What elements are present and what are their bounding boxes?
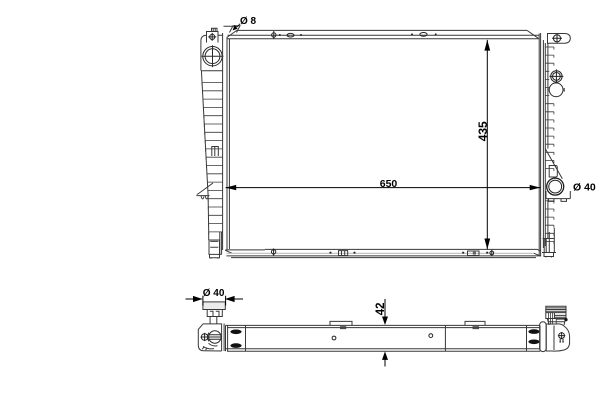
svg-text:435: 435 — [476, 121, 490, 141]
svg-text:650: 650 — [380, 178, 398, 190]
svg-text:Ø 40: Ø 40 — [203, 288, 225, 299]
svg-text:Ø 8: Ø 8 — [240, 16, 257, 27]
svg-text:Ø 40: Ø 40 — [573, 182, 596, 194]
svg-text:42: 42 — [375, 303, 387, 316]
